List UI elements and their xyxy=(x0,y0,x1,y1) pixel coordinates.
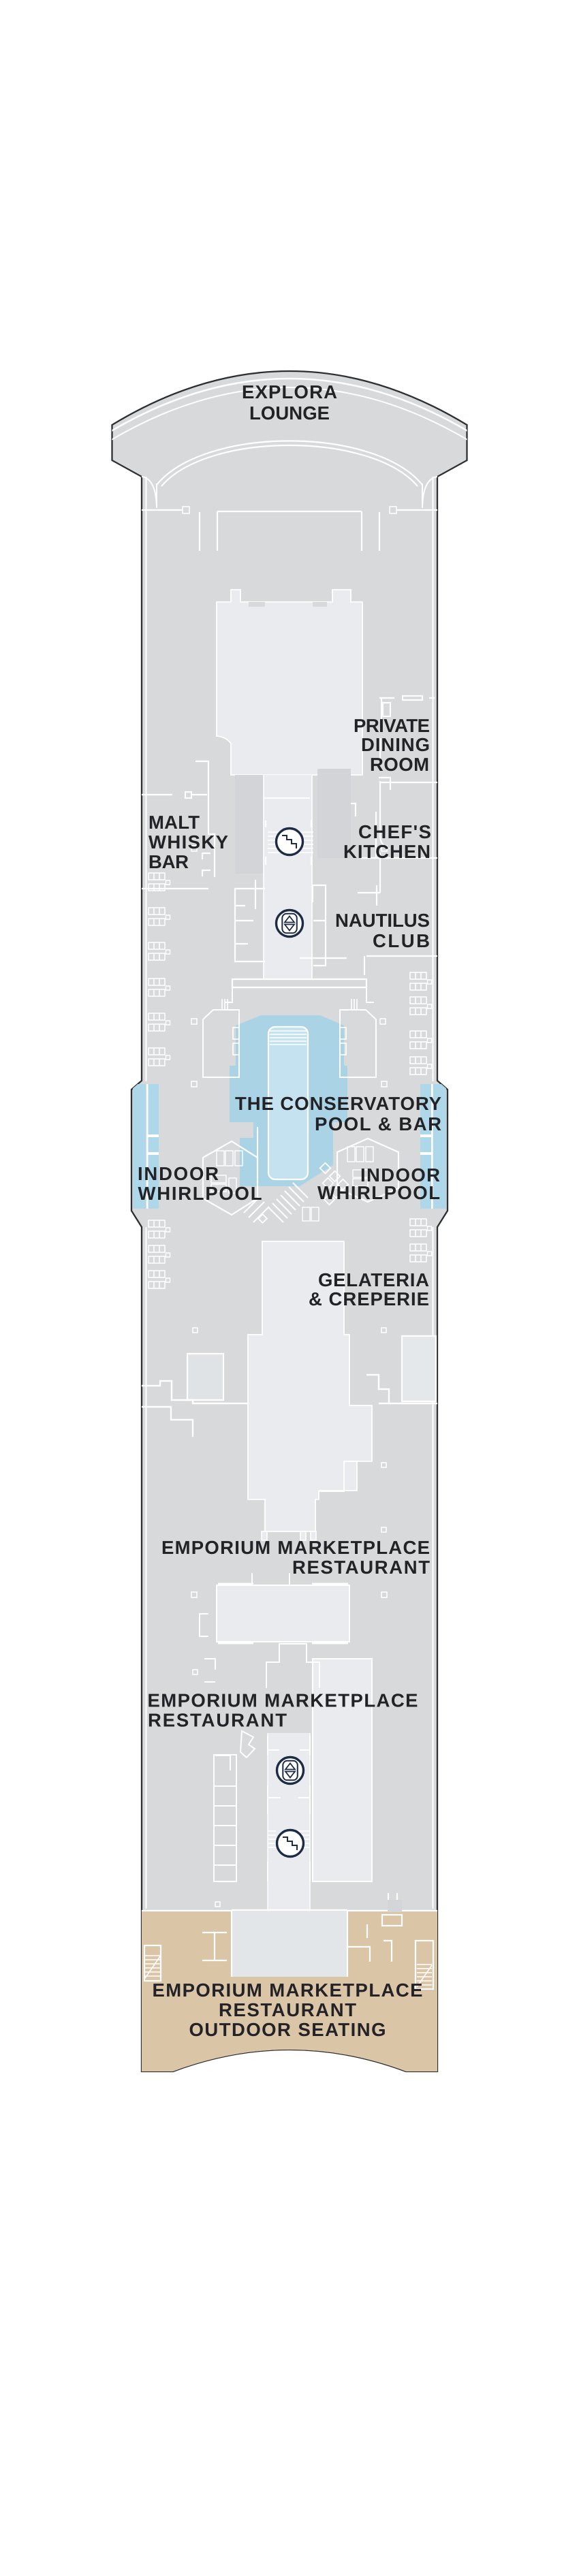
svg-text:NAUTILUS: NAUTILUS xyxy=(335,910,430,931)
svg-text:BAR: BAR xyxy=(148,851,189,872)
svg-text:KITCHEN: KITCHEN xyxy=(343,841,431,862)
svg-text:CHEF'S: CHEF'S xyxy=(358,821,431,842)
svg-text:GELATERIA: GELATERIA xyxy=(318,1269,429,1290)
svg-text:& CREPERIE: & CREPERIE xyxy=(309,1288,429,1309)
svg-text:RESTAURANT: RESTAURANT xyxy=(219,1999,356,2020)
svg-text:EMPORIUM MARKETPLACE: EMPORIUM MARKETPLACE xyxy=(153,1979,423,2001)
svg-text:PRIVATE: PRIVATE xyxy=(354,715,430,736)
svg-text:WHISKY: WHISKY xyxy=(148,831,228,853)
svg-text:OUTDOOR SEATING: OUTDOOR SEATING xyxy=(189,2019,386,2040)
svg-text:POOL & BAR: POOL & BAR xyxy=(315,1113,441,1134)
svg-text:RESTAURANT: RESTAURANT xyxy=(148,1710,287,1731)
svg-text:EMPORIUM MARKETPLACE: EMPORIUM MARKETPLACE xyxy=(161,1537,430,1558)
svg-text:LOUNGE: LOUNGE xyxy=(249,402,330,424)
svg-text:DINING: DINING xyxy=(361,734,430,755)
svg-text:WHIRLPOOL: WHIRLPOOL xyxy=(138,1183,262,1204)
svg-text:INDOOR: INDOOR xyxy=(138,1163,219,1184)
svg-text:MALT: MALT xyxy=(148,812,200,833)
svg-text:WHIRLPOOL: WHIRLPOOL xyxy=(317,1182,440,1203)
svg-text:RESTAURANT: RESTAURANT xyxy=(292,1557,430,1578)
svg-text:EMPORIUM MARKETPLACE: EMPORIUM MARKETPLACE xyxy=(148,1690,418,1711)
svg-text:THE CONSERVATORY: THE CONSERVATORY xyxy=(235,1093,441,1114)
svg-text:ROOM: ROOM xyxy=(370,754,429,775)
svg-text:CLUB: CLUB xyxy=(373,930,430,951)
